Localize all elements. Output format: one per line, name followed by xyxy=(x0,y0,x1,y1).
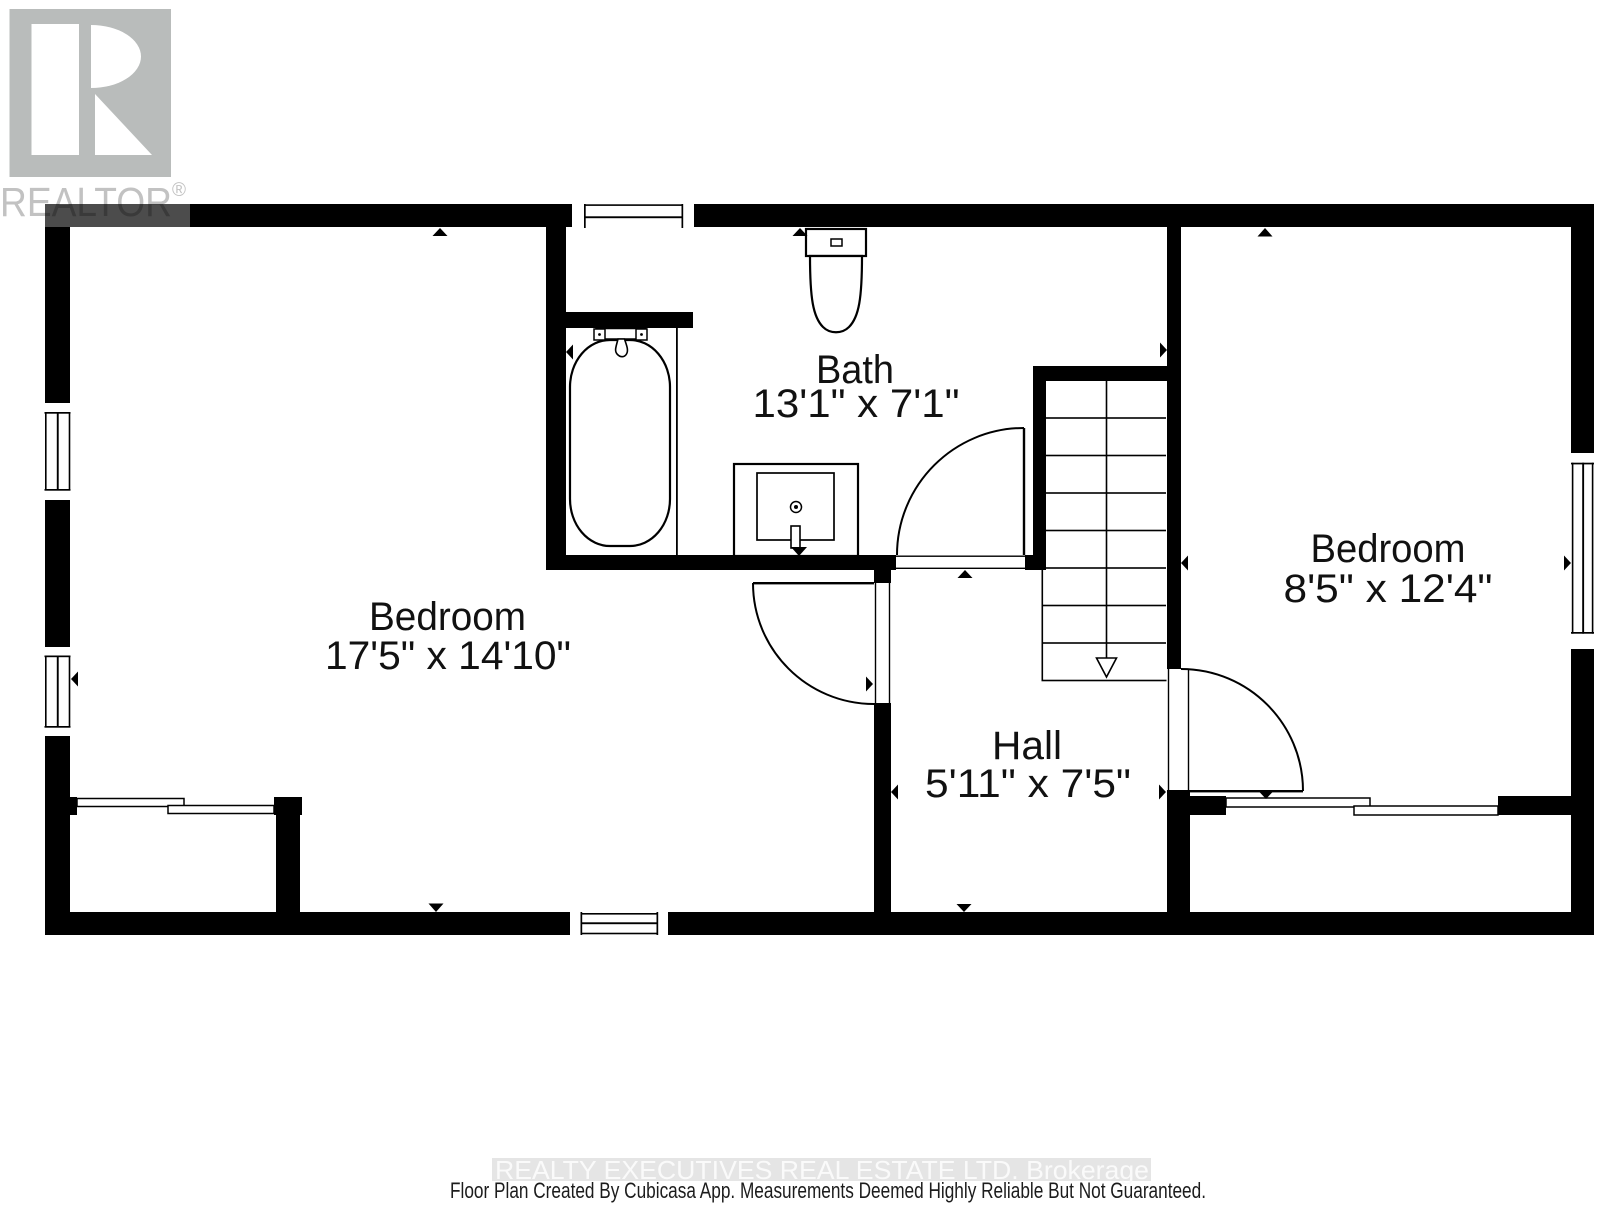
svg-text:17'5" x 14'10": 17'5" x 14'10" xyxy=(325,634,571,678)
svg-text:8'5" x 12'4": 8'5" x 12'4" xyxy=(1284,567,1493,611)
svg-text:13'1" x 7'1": 13'1" x 7'1" xyxy=(753,382,960,426)
svg-text:5'11" x 7'5": 5'11" x 7'5" xyxy=(925,762,1131,806)
svg-text:Bedroom: Bedroom xyxy=(369,595,526,639)
svg-text:Floor Plan Created By Cubicasa: Floor Plan Created By Cubicasa App. Meas… xyxy=(450,1178,1206,1203)
svg-text:Bedroom: Bedroom xyxy=(1311,527,1466,571)
